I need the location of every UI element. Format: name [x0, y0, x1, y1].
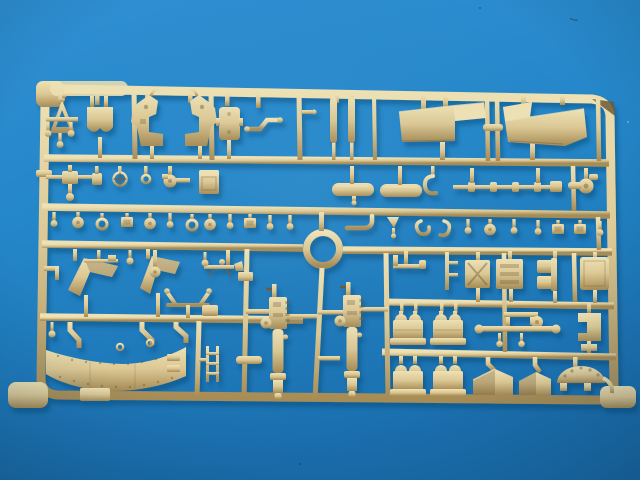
sprue-photo: Photograph of a tan injection-moulded mo…: [0, 0, 640, 480]
photo-vignette: [0, 0, 640, 480]
sprue-photo-svg: Photograph of a tan injection-moulded mo…: [0, 0, 640, 480]
